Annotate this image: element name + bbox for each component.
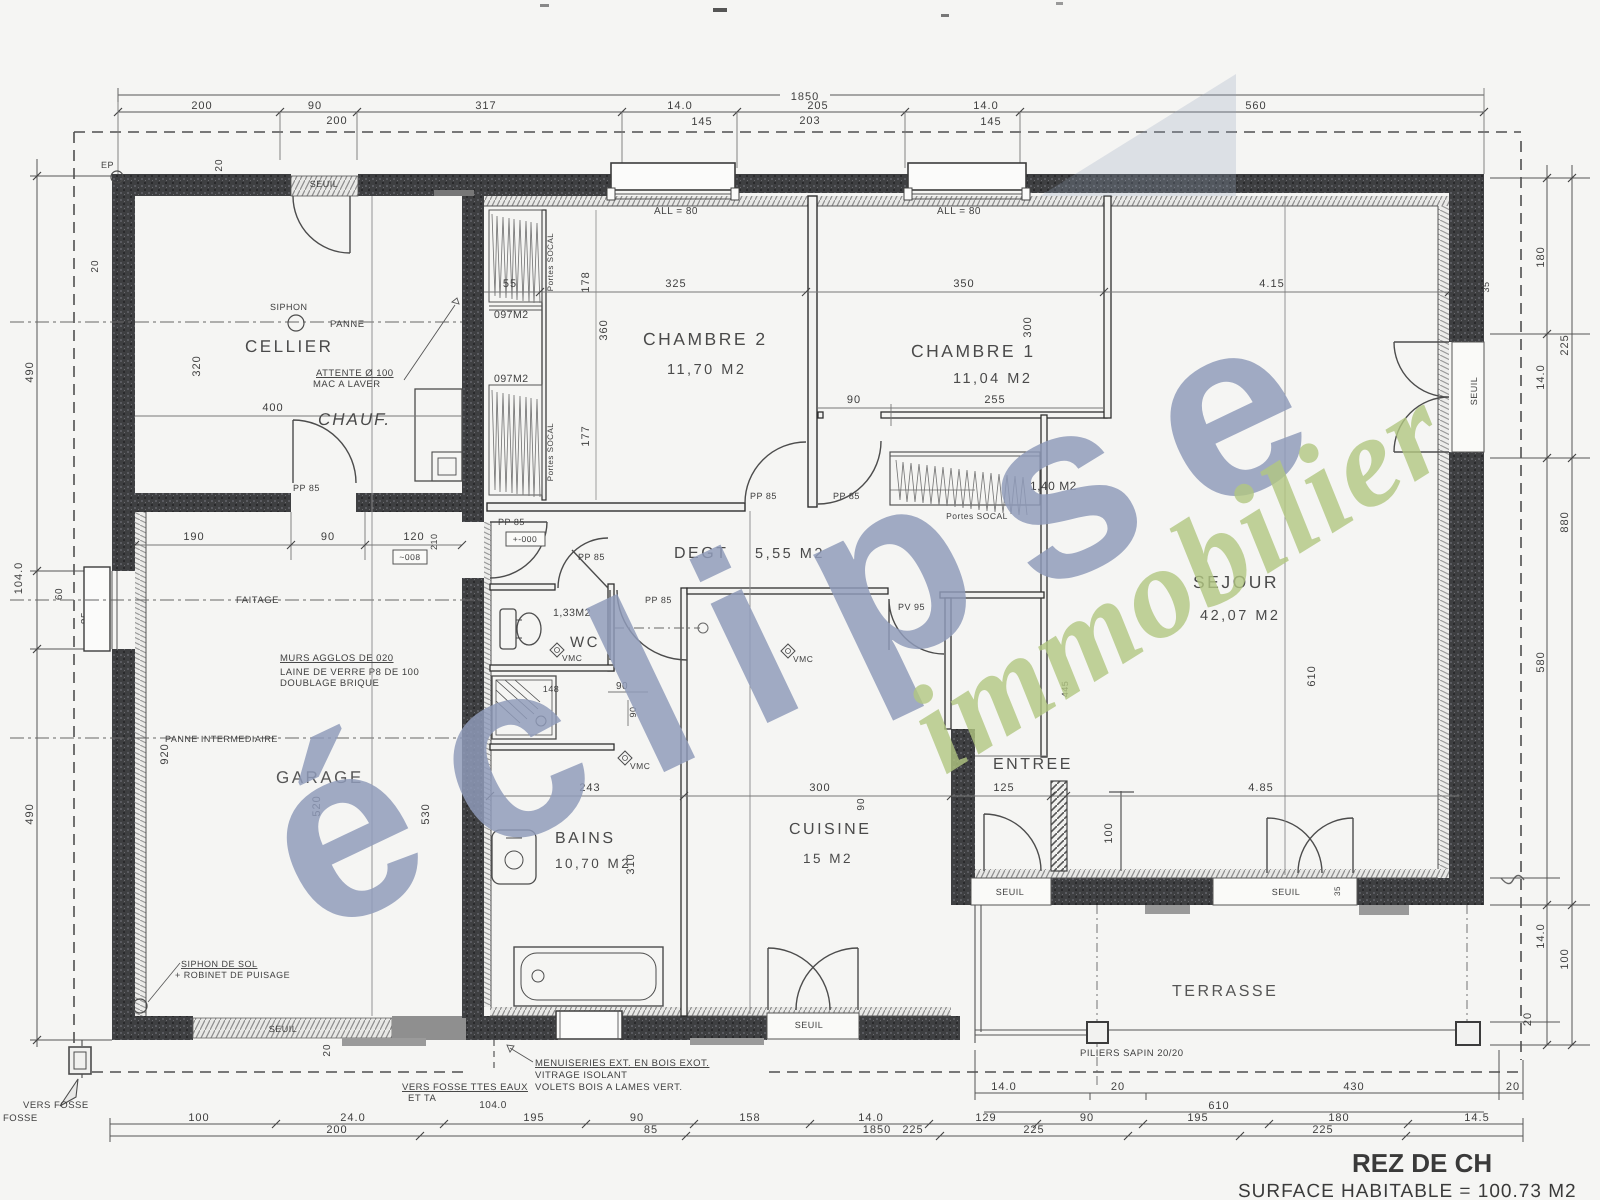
svg-text:225: 225 (1023, 1124, 1044, 1136)
svg-text:15 M2: 15 M2 (803, 851, 853, 866)
svg-text:14.0: 14.0 (1535, 923, 1547, 948)
svg-text:CHAUF.: CHAUF. (318, 410, 391, 429)
svg-text:400: 400 (262, 402, 283, 414)
svg-text:20: 20 (1522, 1012, 1534, 1026)
svg-text:SEUIL: SEUIL (1469, 377, 1479, 406)
svg-text:490: 490 (24, 361, 36, 382)
svg-text:097M2: 097M2 (494, 309, 529, 321)
svg-text:90: 90 (321, 531, 335, 543)
svg-text:+-000: +-000 (513, 534, 537, 544)
svg-text:104.0: 104.0 (13, 562, 25, 595)
svg-text:14.5: 14.5 (1464, 1112, 1489, 1124)
svg-text:145: 145 (980, 116, 1001, 128)
svg-text:195: 195 (523, 1112, 544, 1124)
svg-text:225: 225 (1559, 334, 1571, 355)
svg-text:PILIERS SAPIN 20/20: PILIERS SAPIN 20/20 (1080, 1048, 1184, 1059)
svg-text:360: 360 (598, 319, 610, 340)
svg-text:225: 225 (902, 1124, 923, 1136)
svg-text:560: 560 (1245, 100, 1266, 112)
svg-text:~008: ~008 (399, 552, 420, 562)
svg-text:24.0: 24.0 (340, 1112, 365, 1124)
svg-text:SEUIL: SEUIL (996, 887, 1025, 897)
svg-text:CHAMBRE 2: CHAMBRE 2 (643, 329, 768, 349)
svg-text:ATTENTE Ø 100: ATTENTE Ø 100 (316, 368, 394, 379)
svg-text:490: 490 (24, 803, 36, 824)
svg-text:14.0: 14.0 (973, 100, 998, 112)
svg-text:90: 90 (1080, 1112, 1094, 1124)
svg-text:610: 610 (1306, 665, 1318, 686)
svg-text:610: 610 (1208, 1100, 1229, 1112)
svg-text:EP: EP (101, 160, 114, 170)
svg-text:SEUIL: SEUIL (795, 1020, 824, 1030)
svg-text:20: 20 (322, 1043, 333, 1056)
svg-text:SEUIL: SEUIL (1272, 887, 1301, 897)
svg-text:350: 350 (953, 278, 974, 290)
svg-text:100: 100 (1103, 822, 1115, 843)
svg-text:SEUIL: SEUIL (310, 179, 339, 189)
svg-text:55: 55 (503, 278, 517, 290)
svg-text:MAC A LAVER: MAC A LAVER (313, 379, 381, 390)
svg-text:129: 129 (975, 1112, 996, 1124)
svg-text:203: 203 (799, 115, 820, 127)
svg-text:11,70 M2: 11,70 M2 (667, 362, 746, 378)
svg-text:35: 35 (1481, 281, 1491, 292)
svg-text:200: 200 (326, 1124, 347, 1136)
svg-text:14.0: 14.0 (991, 1081, 1016, 1093)
svg-text:180: 180 (1328, 1112, 1349, 1124)
svg-text:PANNE: PANNE (330, 319, 365, 330)
svg-text:ALL = 80: ALL = 80 (937, 206, 981, 217)
svg-text:300: 300 (1022, 316, 1034, 337)
svg-text:100: 100 (188, 1112, 209, 1124)
svg-text:225: 225 (1312, 1124, 1333, 1136)
svg-text:1850: 1850 (863, 1124, 891, 1136)
svg-text:CELLIER: CELLIER (245, 337, 333, 356)
svg-text:CUISINE: CUISINE (789, 821, 871, 838)
svg-text:317: 317 (475, 100, 496, 112)
svg-text:VERS FOSSE: VERS FOSSE (23, 1100, 89, 1111)
svg-text:90: 90 (308, 100, 322, 112)
svg-text:+ ROBINET DE PUISAGE: + ROBINET DE PUISAGE (175, 970, 290, 980)
svg-text:SIPHON: SIPHON (270, 302, 308, 312)
svg-text:180: 180 (1535, 246, 1547, 267)
svg-text:125: 125 (993, 782, 1014, 794)
svg-text:VERS FOSSE TTES EAUX: VERS FOSSE TTES EAUX (402, 1082, 528, 1093)
svg-text:SURFACE HABITABLE = 100.73 M2: SURFACE HABITABLE = 100.73 M2 (1238, 1181, 1577, 1200)
svg-text:REZ DE CH: REZ DE CH (1352, 1148, 1492, 1178)
svg-text:177: 177 (580, 425, 592, 446)
svg-text:14.0: 14.0 (1535, 364, 1547, 389)
svg-text:MENUISERIES EXT. EN BOIS EXOT.: MENUISERIES EXT. EN BOIS EXOT. (535, 1058, 709, 1069)
svg-text:880: 880 (1559, 511, 1571, 532)
svg-text:097M2: 097M2 (494, 373, 529, 385)
svg-text:60: 60 (54, 588, 65, 600)
svg-text:325: 325 (665, 278, 686, 290)
svg-text:TERRASSE: TERRASSE (1172, 983, 1278, 1000)
svg-text:VOLETS BOIS A LAMES VERT.: VOLETS BOIS A LAMES VERT. (535, 1082, 683, 1093)
svg-text:20: 20 (214, 158, 225, 171)
svg-text:430: 430 (1343, 1081, 1364, 1093)
svg-text:PP 85: PP 85 (498, 517, 525, 527)
svg-text:120: 120 (403, 531, 424, 543)
svg-text:200: 200 (191, 100, 212, 112)
svg-text:20: 20 (1506, 1081, 1520, 1093)
svg-text:PP 85: PP 85 (293, 483, 320, 493)
svg-text:SEUIL: SEUIL (269, 1024, 298, 1034)
svg-text:920: 920 (159, 743, 171, 764)
svg-text:Portes SOCAL: Portes SOCAL (546, 233, 555, 292)
svg-text:4.85: 4.85 (1248, 782, 1273, 794)
svg-text:85: 85 (644, 1124, 658, 1136)
svg-text:VITRAGE ISOLANT: VITRAGE ISOLANT (535, 1070, 628, 1081)
svg-text:35: 35 (1333, 886, 1342, 896)
svg-text:20: 20 (1111, 1081, 1125, 1093)
svg-text:145: 145 (691, 116, 712, 128)
svg-text:20: 20 (90, 259, 101, 272)
svg-text:90: 90 (856, 797, 867, 810)
svg-text:ET TA: ET TA (408, 1093, 437, 1104)
svg-text:90: 90 (630, 1112, 644, 1124)
svg-text:190: 190 (183, 531, 204, 543)
svg-text:320: 320 (191, 355, 203, 376)
svg-text:14.0: 14.0 (667, 100, 692, 112)
svg-text:100: 100 (1559, 948, 1571, 969)
svg-text:195: 195 (1187, 1112, 1208, 1124)
svg-text:210: 210 (429, 533, 439, 550)
svg-text:FAITAGE: FAITAGE (236, 595, 279, 606)
svg-text:580: 580 (1535, 651, 1547, 672)
svg-text:SIPHON DE SOL: SIPHON DE SOL (181, 959, 258, 969)
svg-text:90: 90 (847, 394, 861, 406)
svg-text:205: 205 (807, 100, 828, 112)
svg-text:104.0: 104.0 (479, 1100, 507, 1111)
svg-text:FOSSE: FOSSE (3, 1113, 38, 1124)
svg-text:158: 158 (739, 1112, 760, 1124)
svg-text:200: 200 (326, 115, 347, 127)
svg-text:ALL = 80: ALL = 80 (654, 206, 698, 217)
svg-text:178: 178 (580, 271, 592, 292)
svg-text:Portes SOCAL: Portes SOCAL (546, 423, 555, 482)
svg-text:14.0: 14.0 (858, 1112, 883, 1124)
svg-text:300: 300 (809, 782, 830, 794)
